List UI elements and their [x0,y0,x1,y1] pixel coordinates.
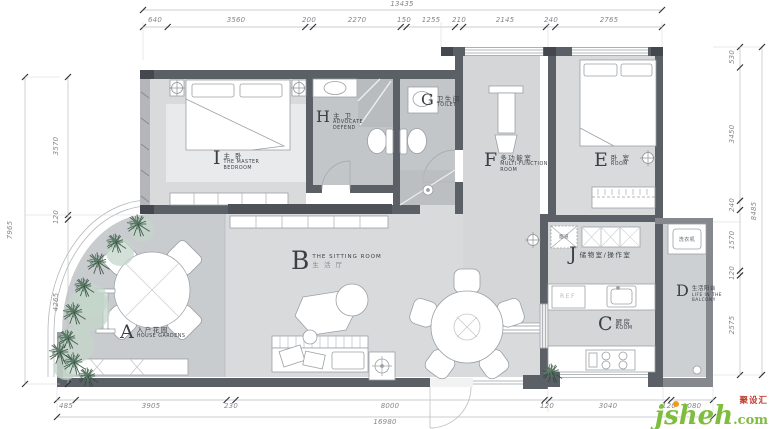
dim-label: 3570 [52,137,60,156]
room-label-sitting-room: B THE SITTING ROOM 生 活 厅 [291,250,382,273]
watermark: 聚设汇 jsheh.com [655,403,768,429]
room-label-bedroom: E 卧 室 ROOM [594,152,630,169]
watermark-badge: 聚设汇 [739,397,768,406]
fridge-label: REF [554,293,582,300]
window-top-E [572,48,648,56]
kitchen-doorway [540,304,548,348]
dim-label: 16980 [373,418,396,426]
window-top-F [465,48,543,56]
dim-label: 150 [397,16,411,24]
dim-label: 8000 [381,402,400,410]
dim-label: 200 [302,16,316,24]
room-label-master-bath: H 主 卫 ADVOCATE DEFEND [316,110,363,133]
dim-label: 240 [544,16,558,24]
dim-label: 530 [728,50,736,64]
room-label-garden: A 入户花园 HOUSE GARDENS [120,324,185,341]
room-label-storage: J 储物室/操作室 [569,246,631,263]
dim-label: 2765 [600,16,619,24]
floor-drain [693,366,701,374]
room-label-toilet: G 卫生间 TOILET [421,93,461,109]
window-bottom-kitchen [560,372,648,380]
room-label-multifunction: F 多功能室 MULTI-FUNCTION ROOM [484,152,548,175]
dim-label: 230 [224,402,238,410]
dim-label: 2270 [348,16,367,24]
dim-label: 120 [728,266,736,280]
dresser [170,193,288,205]
dim-label: 13435 [390,0,413,8]
hatched-wall [140,79,150,214]
dim-label: 120 [52,210,60,224]
master-bed [170,80,306,150]
dim-label: 7965 [6,221,14,240]
floor-plan-canvas: 13435 640 3560 200 2270 150 1255 210 214… [0,0,770,429]
flue-label: 烟道 [553,234,575,240]
tv-console [230,216,388,228]
watermark-tld: .com [733,413,768,428]
room-label-kitchen: C 厨房 ROOM [598,316,633,333]
dim-label: 210 [452,16,466,24]
dim-label: 640 [148,16,162,24]
room-label-master-bedroom: I 主 卧 THE MASTER BEDROOM [213,150,259,173]
dim-label: 485 [59,402,73,410]
dim-label: 2145 [496,16,515,24]
dim-label: 1570 [728,231,736,250]
washer-label: 洗衣机 [671,236,703,243]
tv-wall [228,204,392,214]
dim-label: 1255 [422,16,441,24]
watermark-brand: jsheh [655,401,733,429]
entry-door-swing [430,387,471,428]
room-label-balcony: D 生活阳台 LIFE IN THE BALCONY [676,284,722,304]
watermark-dot [673,401,679,407]
bed-E [580,60,656,146]
window-bottom-B [473,379,523,387]
dim-label: 4265 [52,293,60,312]
dim-label: 120 [540,402,554,410]
sofa [272,336,368,372]
entry-threshold [430,378,473,387]
dim-label: 3040 [599,402,618,410]
floor-outlet-box [369,352,395,380]
floor-corridor [420,205,455,215]
dim-label: 3450 [728,125,736,144]
dim-label: 2575 [728,316,736,335]
dim-label: 8485 [750,202,758,221]
dim-label: 3560 [227,16,246,24]
floor-plan-drawing [0,0,770,429]
wardrobe-E [592,187,655,208]
dim-label: 240 [728,198,736,212]
dim-label: 3905 [142,402,161,410]
